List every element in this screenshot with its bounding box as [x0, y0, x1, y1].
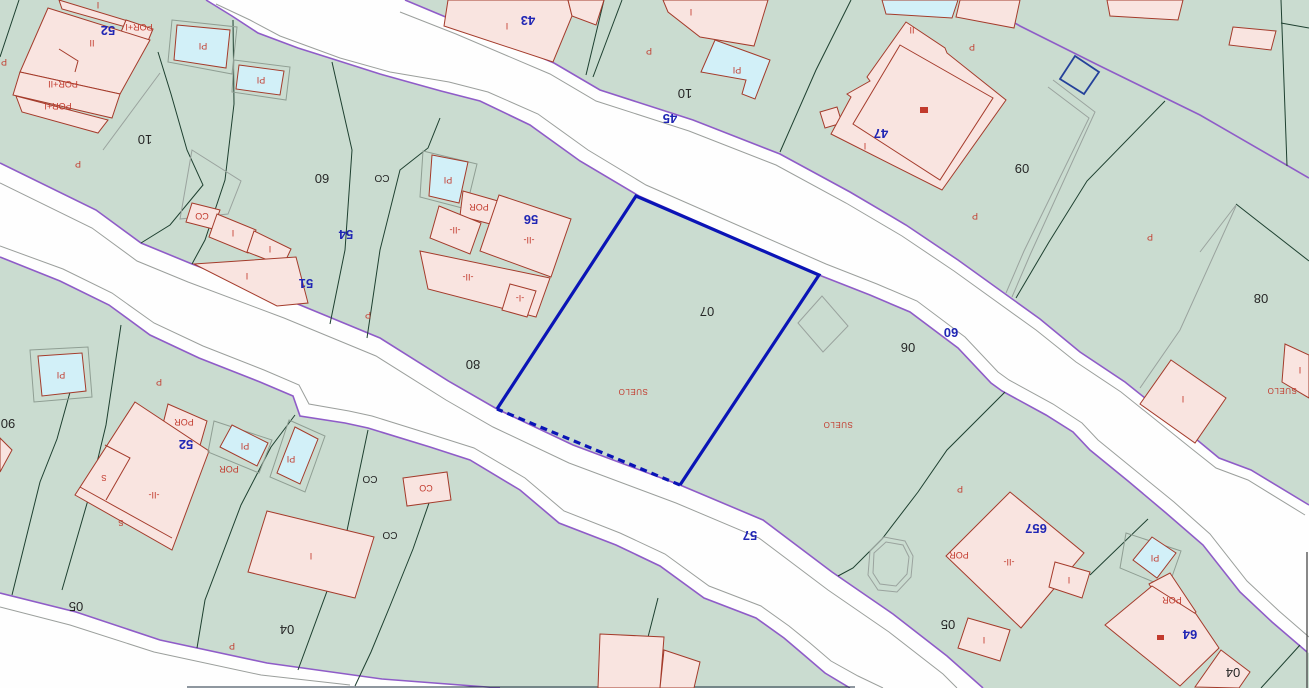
svg-text:PI: PI [57, 370, 66, 380]
svg-text:I: I [232, 228, 235, 238]
svg-text:I: I [97, 0, 100, 10]
svg-text:90: 90 [1, 416, 15, 431]
svg-text:POR: POR [219, 464, 239, 474]
svg-text:-I-: -I- [516, 293, 525, 303]
svg-text:04: 04 [1226, 665, 1240, 680]
svg-text:I: I [246, 271, 249, 281]
svg-text:PI: PI [287, 454, 296, 464]
svg-text:I: I [864, 141, 867, 151]
svg-text:CO: CO [382, 529, 397, 540]
svg-text:-II-: -II- [450, 225, 461, 235]
svg-text:-II-: -II- [1004, 557, 1015, 567]
svg-text:POR+I: POR+I [44, 101, 71, 111]
svg-text:PI: PI [199, 41, 208, 51]
svg-text:I: I [506, 21, 509, 31]
svg-text:PI: PI [257, 75, 266, 85]
svg-text:I: I [1068, 575, 1071, 585]
svg-text:S: S [118, 518, 123, 527]
svg-text:PI: PI [1151, 553, 1160, 563]
svg-text:P: P [365, 310, 371, 320]
svg-text:POR+II: POR+II [48, 79, 78, 89]
svg-text:06: 06 [901, 340, 915, 355]
svg-text:05: 05 [941, 617, 955, 632]
svg-text:CO: CO [362, 473, 377, 484]
svg-text:47: 47 [874, 126, 888, 141]
svg-text:51: 51 [299, 276, 313, 291]
svg-text:CO: CO [419, 483, 433, 493]
svg-text:SUELO: SUELO [823, 420, 853, 429]
svg-text:04: 04 [280, 622, 294, 637]
svg-text:P: P [1, 57, 7, 67]
svg-text:PI: PI [733, 65, 742, 75]
svg-text:-II-: -II- [524, 235, 535, 245]
svg-text:I: I [1299, 365, 1302, 375]
svg-text:60: 60 [315, 171, 329, 186]
svg-text:P: P [75, 159, 81, 169]
svg-text:10: 10 [138, 132, 152, 147]
svg-text:52: 52 [101, 23, 115, 38]
svg-text:SUELO: SUELO [1267, 386, 1297, 395]
svg-text:P: P [1147, 232, 1153, 242]
svg-text:P: P [229, 641, 235, 651]
svg-text:II: II [89, 38, 94, 48]
svg-text:45: 45 [663, 111, 677, 126]
svg-text:-II-: -II- [149, 490, 160, 500]
svg-text:56: 56 [524, 212, 538, 227]
svg-text:P: P [957, 484, 963, 494]
svg-text:P: P [969, 42, 975, 52]
svg-text:POR: POR [469, 202, 489, 212]
svg-text:05: 05 [69, 599, 83, 614]
svg-text:PI: PI [241, 441, 250, 451]
svg-text:I: I [983, 635, 986, 645]
svg-text:07: 07 [700, 304, 714, 319]
svg-text:S: S [101, 473, 106, 482]
svg-text:I: I [1182, 394, 1185, 404]
svg-text:SUELO: SUELO [618, 387, 648, 396]
svg-text:CO: CO [374, 172, 389, 183]
svg-text:II: II [909, 25, 914, 35]
svg-text:657: 657 [1025, 521, 1047, 536]
svg-text:60: 60 [944, 325, 958, 340]
svg-text:PI: PI [444, 175, 453, 185]
svg-text:09: 09 [1015, 161, 1029, 176]
svg-text:I: I [310, 551, 313, 561]
svg-text:P: P [646, 46, 652, 56]
svg-text:CO: CO [195, 211, 209, 221]
svg-text:I: I [269, 244, 272, 254]
svg-text:57: 57 [743, 528, 757, 543]
svg-text:I: I [690, 7, 693, 17]
svg-text:54: 54 [338, 227, 353, 242]
svg-text:POR: POR [1162, 595, 1182, 605]
svg-text:POR: POR [949, 550, 969, 560]
svg-text:08: 08 [1254, 291, 1268, 306]
svg-text:POR+I: POR+I [125, 22, 152, 32]
svg-text:43: 43 [521, 13, 535, 28]
svg-text:52: 52 [179, 437, 193, 452]
svg-text:-II-: -II- [463, 272, 474, 282]
svg-text:P: P [972, 211, 978, 221]
svg-text:P: P [156, 377, 162, 387]
svg-text:10: 10 [678, 86, 692, 101]
svg-text:POR: POR [174, 417, 194, 427]
svg-text:80: 80 [466, 357, 480, 372]
svg-text:64: 64 [1182, 627, 1197, 642]
